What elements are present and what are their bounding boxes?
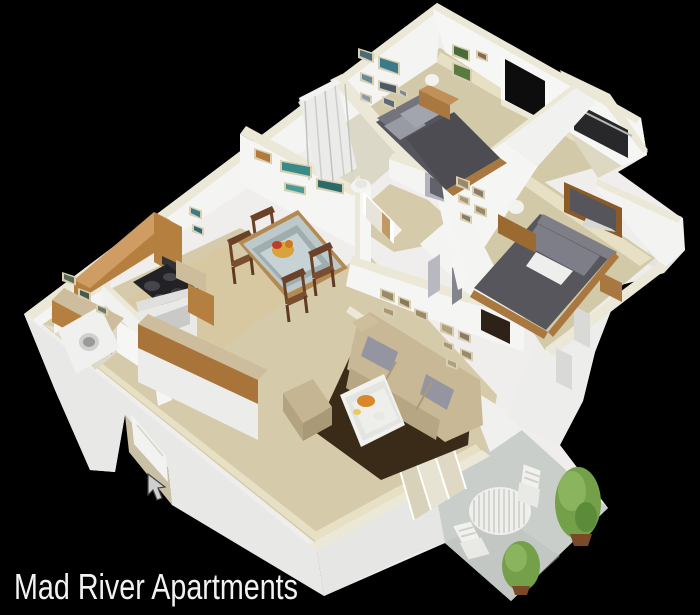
svg-text:Mad River Apartments: Mad River Apartments [14, 566, 298, 607]
